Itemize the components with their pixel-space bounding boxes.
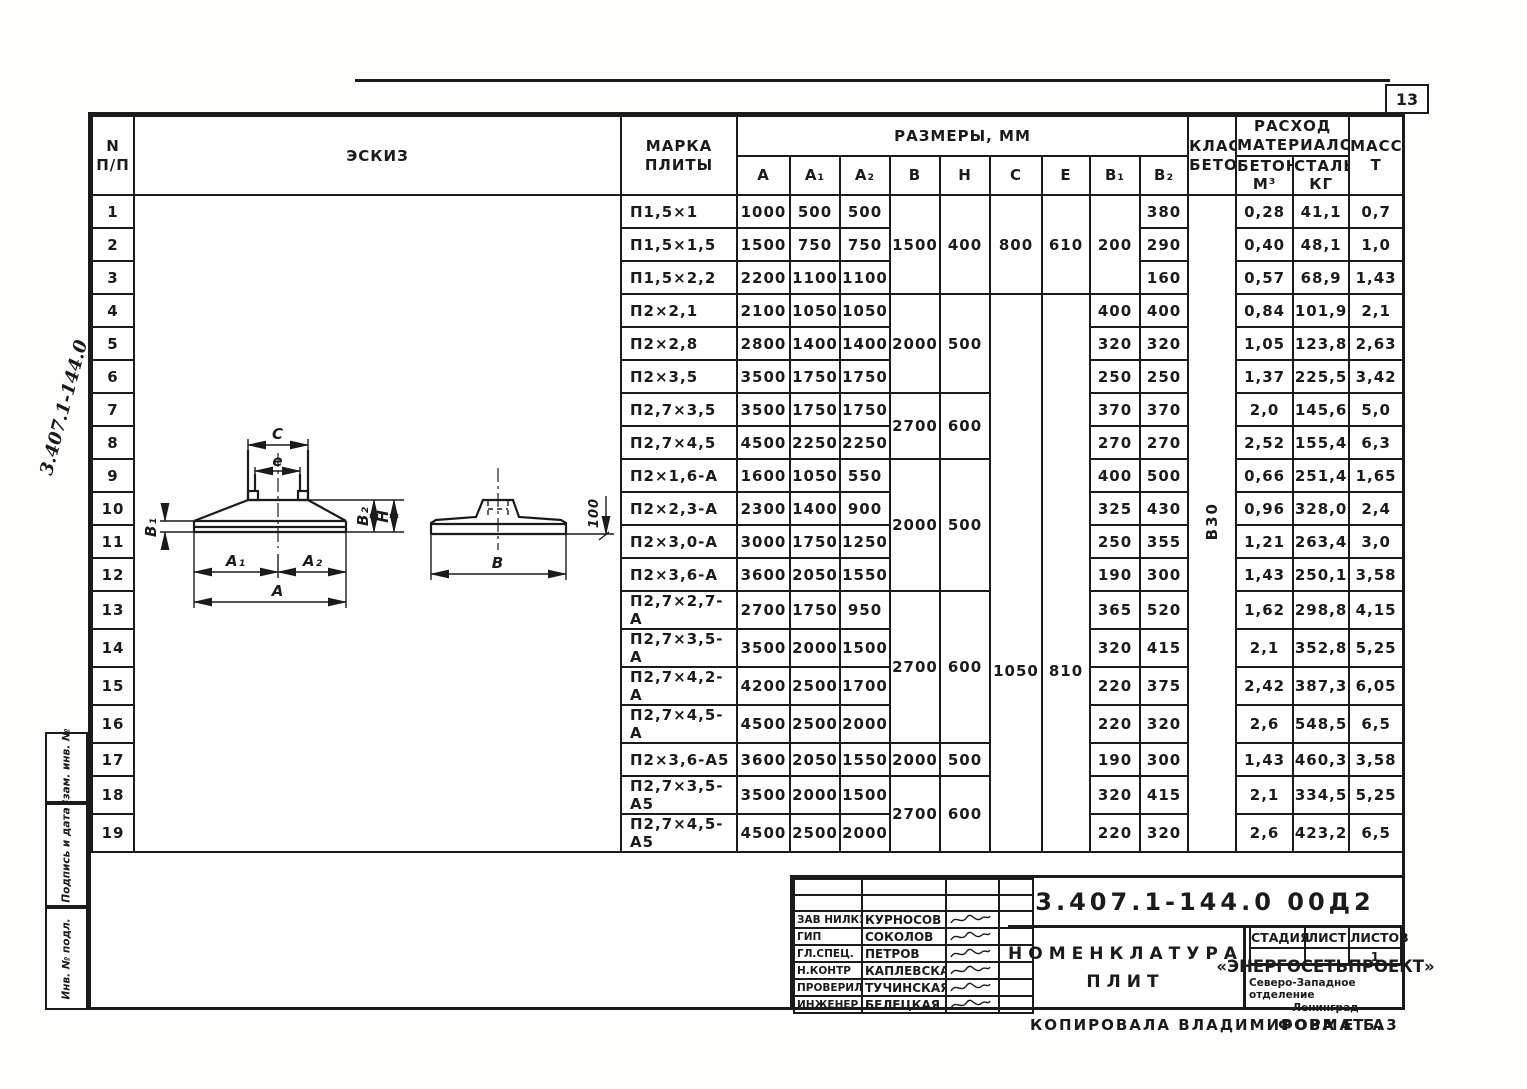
cell-B: 2000 — [890, 743, 940, 776]
cell-mass: 3,58 — [1349, 558, 1403, 591]
cell-H: 500 — [940, 294, 990, 393]
cell-concrete: 1,37 — [1236, 360, 1293, 393]
cell-num: 19 — [92, 814, 134, 852]
cell-num: 3 — [92, 261, 134, 294]
cell-mass: 5,25 — [1349, 776, 1403, 814]
cell-concrete: 2,6 — [1236, 705, 1293, 743]
cell-A: 3500 — [737, 393, 790, 426]
cell-A2: 750 — [840, 228, 890, 261]
cell-A: 4500 — [737, 426, 790, 459]
cell-concrete: 2,0 — [1236, 393, 1293, 426]
cell-num: 8 — [92, 426, 134, 459]
cell-A: 2100 — [737, 294, 790, 327]
cell-mass: 2,4 — [1349, 492, 1403, 525]
cell-A2: 1500 — [840, 629, 890, 667]
cell-concrete: 1,43 — [1236, 743, 1293, 776]
cell-H: 500 — [940, 743, 990, 776]
signature — [949, 980, 991, 995]
cell-steel: 155,4 — [1293, 426, 1349, 459]
header-B1: В₁ — [1090, 156, 1140, 196]
cell-B1: 270 — [1090, 426, 1140, 459]
cell-mark: П2×3,6-А5 — [621, 743, 737, 776]
personnel-signature — [946, 911, 999, 928]
cell-B1: 190 — [1090, 743, 1140, 776]
cell-mark: П2×3,6-А — [621, 558, 737, 591]
cell-steel: 423,2 — [1293, 814, 1349, 852]
cell-B1: 400 — [1090, 294, 1140, 327]
label-H: Н — [374, 509, 392, 523]
cell-num: 7 — [92, 393, 134, 426]
cell-B2: 300 — [1140, 558, 1188, 591]
cell-A2: 1750 — [840, 360, 890, 393]
cell-num: 1 — [92, 195, 134, 228]
cell-mark: П2×2,3-А — [621, 492, 737, 525]
cell-num: 6 — [92, 360, 134, 393]
cell-mass: 3,42 — [1349, 360, 1403, 393]
cell-B2: 375 — [1140, 667, 1188, 705]
cell-A2: 1500 — [840, 776, 890, 814]
personnel-signature — [946, 928, 999, 945]
page-number: 13 — [1396, 90, 1418, 109]
header-sizes: Размеры, мм — [737, 116, 1188, 156]
organization-branch: Северо-Западное отделение — [1249, 977, 1402, 1001]
cell-A: 3600 — [737, 743, 790, 776]
label-e: е — [272, 452, 283, 470]
cell-concrete: 2,52 — [1236, 426, 1293, 459]
drawing-sheet-frame: N п/п Эскиз Марка плиты Размеры, мм Клас… — [88, 112, 1405, 1010]
cell-steel: 225,5 — [1293, 360, 1349, 393]
cell-B2: 270 — [1140, 426, 1188, 459]
cell-mark: П2,7×3,5-А5 — [621, 776, 737, 814]
cell-A2: 2000 — [840, 705, 890, 743]
cell-B2: 320 — [1140, 327, 1188, 360]
cell-A: 1600 — [737, 459, 790, 492]
cell-concrete: 0,96 — [1236, 492, 1293, 525]
cell-mass: 5,25 — [1349, 629, 1403, 667]
cell-A1: 2050 — [790, 558, 840, 591]
cell-mark: П2×2,8 — [621, 327, 737, 360]
sheet-label: Лист — [1305, 928, 1349, 948]
cell-A2: 1400 — [840, 327, 890, 360]
sheets-label: Листов — [1349, 928, 1401, 948]
personnel-row — [794, 895, 1033, 911]
cell-steel: 250,1 — [1293, 558, 1349, 591]
cell-steel: 334,5 — [1293, 776, 1349, 814]
cell-B1: 370 — [1090, 393, 1140, 426]
cell-A2: 900 — [840, 492, 890, 525]
cell-num: 17 — [92, 743, 134, 776]
cell-A: 2800 — [737, 327, 790, 360]
personnel-name: Белецкая — [862, 996, 946, 1013]
cell-sk: С е В₁ В₂ Н А₁ А₂ А В 100 — [134, 195, 621, 852]
personnel-role: Н.контр — [794, 962, 862, 979]
format-note: Формат А3 — [1278, 1016, 1399, 1034]
cell-A1: 2500 — [790, 705, 840, 743]
side-handwritten-code: 3.407.1-144.0 — [36, 338, 92, 478]
cell-B: 2000 — [890, 459, 940, 591]
cell-A2: 1550 — [840, 743, 890, 776]
cell-num: 10 — [92, 492, 134, 525]
cell-concrete: 0,28 — [1236, 195, 1293, 228]
plate-nomenclature-table: N п/п Эскиз Марка плиты Размеры, мм Клас… — [91, 115, 1404, 853]
cell-A2: 1250 — [840, 525, 890, 558]
cell-num: 11 — [92, 525, 134, 558]
personnel-role: Зав НИЛКЭ — [794, 911, 862, 928]
cell-mark: П1,5×2,2 — [621, 261, 737, 294]
cell-B2: 430 — [1140, 492, 1188, 525]
cell-B2: 380 — [1140, 195, 1188, 228]
slab-outline — [194, 500, 346, 532]
cell-steel: 251,4 — [1293, 459, 1349, 492]
cell-B1: 320 — [1090, 776, 1140, 814]
signature — [949, 946, 991, 961]
cell-B1: 320 — [1090, 629, 1140, 667]
cell-A1: 1400 — [790, 492, 840, 525]
plate-sketch: С е В₁ В₂ Н А₁ А₂ А В 100 — [136, 210, 619, 833]
label-A: А — [271, 582, 285, 600]
cell-A2: 1750 — [840, 393, 890, 426]
cell-mark: П1,5×1,5 — [621, 228, 737, 261]
header-steel: Сталь, кг — [1293, 156, 1349, 196]
cell-steel: 298,8 — [1293, 591, 1349, 629]
cell-concrete: 1,05 — [1236, 327, 1293, 360]
cell-A2: 1100 — [840, 261, 890, 294]
cell-A2: 2250 — [840, 426, 890, 459]
organization-city: Ленинград — [1292, 1002, 1358, 1014]
cell-mass: 3,58 — [1349, 743, 1403, 776]
cell-mark: П2,7×4,5 — [621, 426, 737, 459]
cell-steel: 352,8 — [1293, 629, 1349, 667]
personnel-row: ПроверилТучинская — [794, 979, 1033, 996]
cell-num: 13 — [92, 591, 134, 629]
label-B: В — [492, 554, 504, 572]
personnel-signature — [946, 996, 999, 1013]
header-C: С — [990, 156, 1042, 196]
header-materials: Расход материалов — [1236, 116, 1349, 156]
cell-A1: 1750 — [790, 591, 840, 629]
personnel-signature — [946, 945, 999, 962]
cell-mass: 6,05 — [1349, 667, 1403, 705]
cell-mass: 4,15 — [1349, 591, 1403, 629]
cell-steel: 48,1 — [1293, 228, 1349, 261]
cell-C: 1050 — [990, 294, 1042, 852]
cell-B1: 250 — [1090, 525, 1140, 558]
cell-mass: 3,0 — [1349, 525, 1403, 558]
cell-concrete: 2,6 — [1236, 814, 1293, 852]
cell-num: 14 — [92, 629, 134, 667]
cell-H: 500 — [940, 459, 990, 591]
cell-cls: В30 — [1188, 195, 1236, 852]
cell-mass: 6,3 — [1349, 426, 1403, 459]
signature — [949, 929, 991, 944]
cell-A1: 500 — [790, 195, 840, 228]
cell-num: 18 — [92, 776, 134, 814]
cell-A1: 1750 — [790, 360, 840, 393]
cell-B: 2700 — [890, 776, 940, 852]
cell-A: 4200 — [737, 667, 790, 705]
cell-concrete: 2,1 — [1236, 629, 1293, 667]
stamp-vzam-inv: Взам. инв. № — [45, 732, 88, 803]
cell-B: 2000 — [890, 294, 940, 393]
cell-mass: 6,5 — [1349, 814, 1403, 852]
cell-A: 3600 — [737, 558, 790, 591]
header-e: е — [1042, 156, 1090, 196]
cell-B2: 415 — [1140, 629, 1188, 667]
stamp-podpis-data: Подпись и дата — [45, 803, 88, 907]
cell-B2: 160 — [1140, 261, 1188, 294]
cell-mark: П2×3,0-А — [621, 525, 737, 558]
personnel-signature — [946, 962, 999, 979]
cell-B1: 365 — [1090, 591, 1140, 629]
cell-B: 1500 — [890, 195, 940, 294]
personnel-row: ГИПСоколов — [794, 928, 1033, 945]
cell-mass: 1,65 — [1349, 459, 1403, 492]
cell-num: 12 — [92, 558, 134, 591]
cell-mark: П2×2,1 — [621, 294, 737, 327]
cell-A1: 2500 — [790, 814, 840, 852]
cell-mass: 0,7 — [1349, 195, 1403, 228]
drawing-title: Номенклатура плит — [1008, 928, 1246, 1007]
cell-mass: 5,0 — [1349, 393, 1403, 426]
header-concrete-class: Класс бетона — [1188, 116, 1236, 195]
personnel-name: Соколов — [862, 928, 946, 945]
cell-B1: 220 — [1090, 705, 1140, 743]
doc-number: 3.407.1-144.0 00Д2 — [1008, 878, 1402, 928]
cell-mark: П2,7×4,5-А — [621, 705, 737, 743]
cell-A2: 950 — [840, 591, 890, 629]
header-concrete: Бетон, м³ — [1236, 156, 1293, 196]
cell-num: 4 — [92, 294, 134, 327]
cell-A: 4500 — [737, 705, 790, 743]
personnel-name: Петров — [862, 945, 946, 962]
cell-A: 3500 — [737, 629, 790, 667]
cell-A: 1000 — [737, 195, 790, 228]
label-A1: А₁ — [225, 552, 246, 570]
cell-A: 2300 — [737, 492, 790, 525]
cell-mark: П2,7×3,5 — [621, 393, 737, 426]
cell-mark: П2×3,5 — [621, 360, 737, 393]
cell-B1: 400 — [1090, 459, 1140, 492]
cell-concrete: 1,21 — [1236, 525, 1293, 558]
cell-A2: 1050 — [840, 294, 890, 327]
cell-steel: 101,9 — [1293, 294, 1349, 327]
cell-steel: 548,5 — [1293, 705, 1349, 743]
cell-e: 610 — [1042, 195, 1090, 294]
cell-A: 3500 — [737, 776, 790, 814]
personnel-row: Гл.спец.Петров — [794, 945, 1033, 962]
cell-concrete: 0,57 — [1236, 261, 1293, 294]
cell-steel: 123,8 — [1293, 327, 1349, 360]
cell-A: 3000 — [737, 525, 790, 558]
cell-steel: 328,0 — [1293, 492, 1349, 525]
personnel-row: Зав НИЛКЭКурносов — [794, 911, 1033, 928]
header-A1: А₁ — [790, 156, 840, 196]
cell-mass: 2,63 — [1349, 327, 1403, 360]
table-row: 1 — [92, 195, 1403, 228]
cell-A1: 1100 — [790, 261, 840, 294]
stage-label: Стадия — [1250, 928, 1305, 948]
stage-sheet-block: Стадия Лист Листов 1 «ЭНЕРГОСЕТЬПРОЕКТ» … — [1249, 928, 1402, 1007]
cell-H: 400 — [940, 195, 990, 294]
cell-A: 1500 — [737, 228, 790, 261]
cell-B2: 415 — [1140, 776, 1188, 814]
label-100: 100 — [587, 498, 602, 528]
cell-A1: 2000 — [790, 776, 840, 814]
cell-B2: 290 — [1140, 228, 1188, 261]
label-C: С — [272, 425, 284, 443]
personnel-name: Курносов — [862, 911, 946, 928]
cell-A1: 2500 — [790, 667, 840, 705]
cell-B1: 320 — [1090, 327, 1140, 360]
cell-H: 600 — [940, 776, 990, 852]
cell-concrete: 1,43 — [1236, 558, 1293, 591]
cell-A1: 1750 — [790, 525, 840, 558]
header-B: В — [890, 156, 940, 196]
cell-B: 2700 — [890, 591, 940, 743]
label-A2: А₂ — [302, 552, 323, 570]
cell-A2: 2000 — [840, 814, 890, 852]
personnel-row: ИнженерБелецкая — [794, 996, 1033, 1013]
sheet-top-edge — [355, 79, 1390, 82]
signature — [949, 963, 991, 978]
cell-mark: П2,7×3,5-А — [621, 629, 737, 667]
header-mark: Марка плиты — [621, 116, 737, 195]
header-mass: Масса, т — [1349, 116, 1403, 195]
cell-A2: 550 — [840, 459, 890, 492]
personnel-role: Гл.спец. — [794, 945, 862, 962]
cell-B2: 320 — [1140, 705, 1188, 743]
organization-name: «ЭНЕРГОСЕТЬПРОЕКТ» — [1216, 958, 1434, 977]
cell-mass: 2,1 — [1349, 294, 1403, 327]
cell-mass: 1,43 — [1349, 261, 1403, 294]
cell-mass: 6,5 — [1349, 705, 1403, 743]
signature — [949, 997, 991, 1012]
cell-num: 2 — [92, 228, 134, 261]
personnel-row — [794, 879, 1033, 895]
cell-B2: 320 — [1140, 814, 1188, 852]
cell-num: 15 — [92, 667, 134, 705]
label-B1: В₁ — [142, 517, 160, 537]
cell-A1: 2050 — [790, 743, 840, 776]
cell-mark: П2,7×4,5-А5 — [621, 814, 737, 852]
organization-box: «ЭНЕРГОСЕТЬПРОЕКТ» Северо-Западное отдел… — [1249, 963, 1402, 1007]
dim-A1-A2 — [194, 532, 346, 578]
title-block: Зав НИЛКЭКурносов ГИПСоколов Гл.спец.Пет… — [790, 875, 1402, 1007]
cell-B1: 325 — [1090, 492, 1140, 525]
personnel-role: Проверил — [794, 979, 862, 996]
cell-H: 600 — [940, 591, 990, 743]
header-num: N п/п — [92, 116, 134, 195]
cell-B1: 190 — [1090, 558, 1140, 591]
cell-concrete: 0,84 — [1236, 294, 1293, 327]
cell-B2: 370 — [1140, 393, 1188, 426]
personnel-signature — [946, 979, 999, 996]
cell-A1: 2250 — [790, 426, 840, 459]
cell-mark: П2,7×2,7-А — [621, 591, 737, 629]
dim-A — [194, 578, 346, 608]
cell-B2: 355 — [1140, 525, 1188, 558]
cell-C: 800 — [990, 195, 1042, 294]
personnel-role: Инженер — [794, 996, 862, 1013]
personnel-table: Зав НИЛКЭКурносов ГИПСоколов Гл.спец.Пет… — [793, 878, 1034, 1014]
cell-A2: 1700 — [840, 667, 890, 705]
cell-A2: 1550 — [840, 558, 890, 591]
dim-B1 — [160, 507, 194, 546]
cell-B1: 220 — [1090, 667, 1140, 705]
cell-B1: 200 — [1090, 195, 1140, 294]
cell-A: 2700 — [737, 591, 790, 629]
cell-num: 16 — [92, 705, 134, 743]
page-number-box: 13 — [1385, 84, 1429, 114]
cell-B2: 300 — [1140, 743, 1188, 776]
cell-steel: 263,4 — [1293, 525, 1349, 558]
cell-mark: П2,7×4,2-А — [621, 667, 737, 705]
cell-B1: 250 — [1090, 360, 1140, 393]
header-B2: В₂ — [1140, 156, 1188, 196]
personnel-name: Тучинская — [862, 979, 946, 996]
personnel-row: Н.контрКаплевская — [794, 962, 1033, 979]
cell-concrete: 0,66 — [1236, 459, 1293, 492]
header-H: Н — [940, 156, 990, 196]
cell-concrete: 2,1 — [1236, 776, 1293, 814]
cell-B2: 520 — [1140, 591, 1188, 629]
cell-A2: 500 — [840, 195, 890, 228]
cell-steel: 387,3 — [1293, 667, 1349, 705]
personnel-name: Каплевская — [862, 962, 946, 979]
cell-steel: 41,1 — [1293, 195, 1349, 228]
cell-concrete: 0,40 — [1236, 228, 1293, 261]
cell-num: 5 — [92, 327, 134, 360]
cell-B: 2700 — [890, 393, 940, 459]
cell-steel: 68,9 — [1293, 261, 1349, 294]
cell-B2: 250 — [1140, 360, 1188, 393]
cell-mark: П2×1,6-А — [621, 459, 737, 492]
stamp-inv-podl: Инв. № подл. — [45, 907, 88, 1010]
cell-mark: П1,5×1 — [621, 195, 737, 228]
signature — [949, 912, 991, 927]
cell-A1: 1750 — [790, 393, 840, 426]
cell-B2: 500 — [1140, 459, 1188, 492]
cell-A1: 1050 — [790, 459, 840, 492]
header-A2: А₂ — [840, 156, 890, 196]
cell-A1: 1050 — [790, 294, 840, 327]
plate-table-body: 1 — [92, 195, 1403, 852]
cell-e: 810 — [1042, 294, 1090, 852]
label-B2: В₂ — [354, 506, 372, 526]
cell-H: 600 — [940, 393, 990, 459]
cell-concrete: 2,42 — [1236, 667, 1293, 705]
table-header: N п/п Эскиз Марка плиты Размеры, мм Клас… — [92, 116, 1403, 195]
cell-A1: 2000 — [790, 629, 840, 667]
header-A: А — [737, 156, 790, 196]
cell-A: 4500 — [737, 814, 790, 852]
cell-steel: 460,3 — [1293, 743, 1349, 776]
cell-A: 2200 — [737, 261, 790, 294]
cell-A: 3500 — [737, 360, 790, 393]
cell-B2: 400 — [1140, 294, 1188, 327]
cell-concrete: 1,62 — [1236, 591, 1293, 629]
cell-A1: 1400 — [790, 327, 840, 360]
cell-A1: 750 — [790, 228, 840, 261]
header-sketch: Эскиз — [134, 116, 621, 195]
personnel-role: ГИП — [794, 928, 862, 945]
cell-B1: 220 — [1090, 814, 1140, 852]
cell-steel: 145,6 — [1293, 393, 1349, 426]
cell-num: 9 — [92, 459, 134, 492]
cell-mass: 1,0 — [1349, 228, 1403, 261]
